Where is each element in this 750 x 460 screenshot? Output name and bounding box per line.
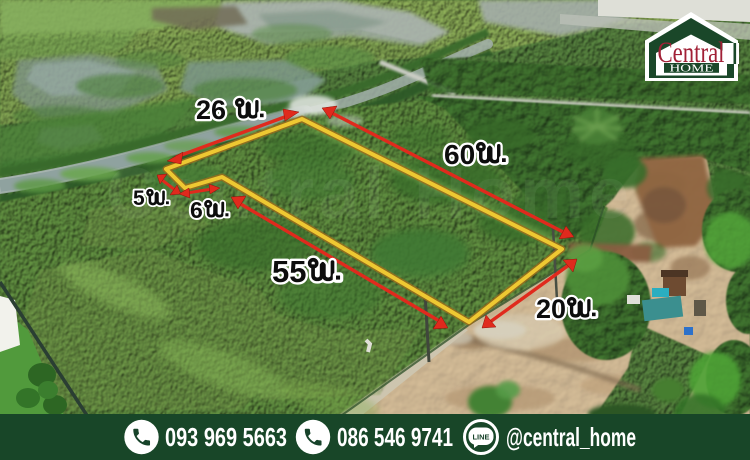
svg-text:086 546 9741: 086 546 9741 xyxy=(337,422,453,452)
svg-text:LINE: LINE xyxy=(472,433,489,442)
svg-text:@central_home: @central_home xyxy=(506,422,636,452)
svg-text:20: 20 xyxy=(536,294,566,324)
svg-text:093 969 5663: 093 969 5663 xyxy=(165,422,287,452)
svg-text:55: 55 xyxy=(272,254,306,289)
svg-text:5: 5 xyxy=(133,187,145,210)
svg-text:26: 26 xyxy=(196,95,226,125)
svg-text:60: 60 xyxy=(444,139,475,170)
svg-text:HOME: HOME xyxy=(670,63,714,75)
svg-text:6: 6 xyxy=(190,197,203,223)
